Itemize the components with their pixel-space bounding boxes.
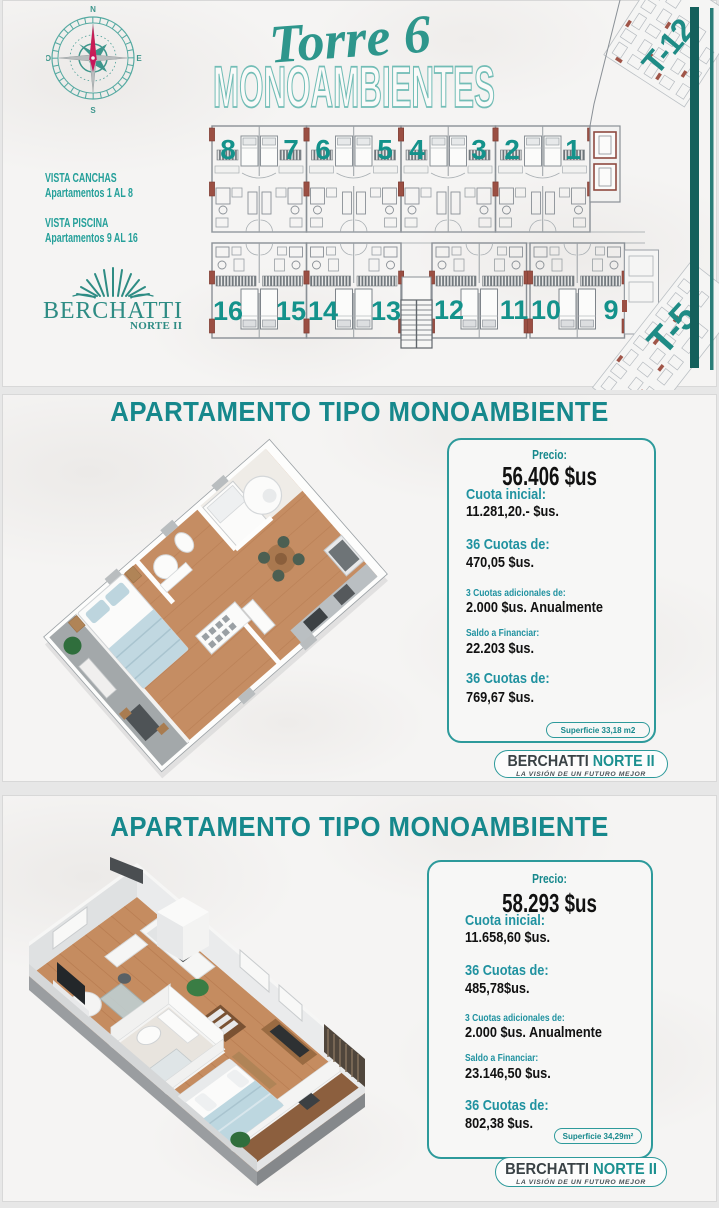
svg-text:8: 8 [220, 134, 236, 165]
svg-text:12: 12 [434, 295, 464, 325]
svg-text:14: 14 [308, 296, 338, 326]
svg-text:16: 16 [213, 296, 243, 326]
svg-text:1: 1 [565, 134, 581, 165]
svg-text:N: N [90, 5, 96, 14]
svg-text:NORTE II: NORTE II [130, 320, 182, 332]
svg-text:10: 10 [531, 295, 561, 325]
svg-text:11: 11 [500, 295, 529, 325]
svg-text:S: S [90, 106, 96, 115]
svg-text:2: 2 [504, 134, 520, 165]
svg-text:13: 13 [371, 296, 401, 326]
svg-text:6: 6 [315, 134, 331, 165]
svg-text:9: 9 [603, 295, 618, 325]
svg-text:O: O [46, 54, 51, 63]
svg-text:3: 3 [471, 134, 487, 165]
svg-text:E: E [136, 54, 142, 63]
svg-text:7: 7 [283, 134, 299, 165]
svg-text:4: 4 [409, 134, 425, 165]
svg-text:15: 15 [276, 296, 306, 326]
svg-text:5: 5 [377, 134, 393, 165]
